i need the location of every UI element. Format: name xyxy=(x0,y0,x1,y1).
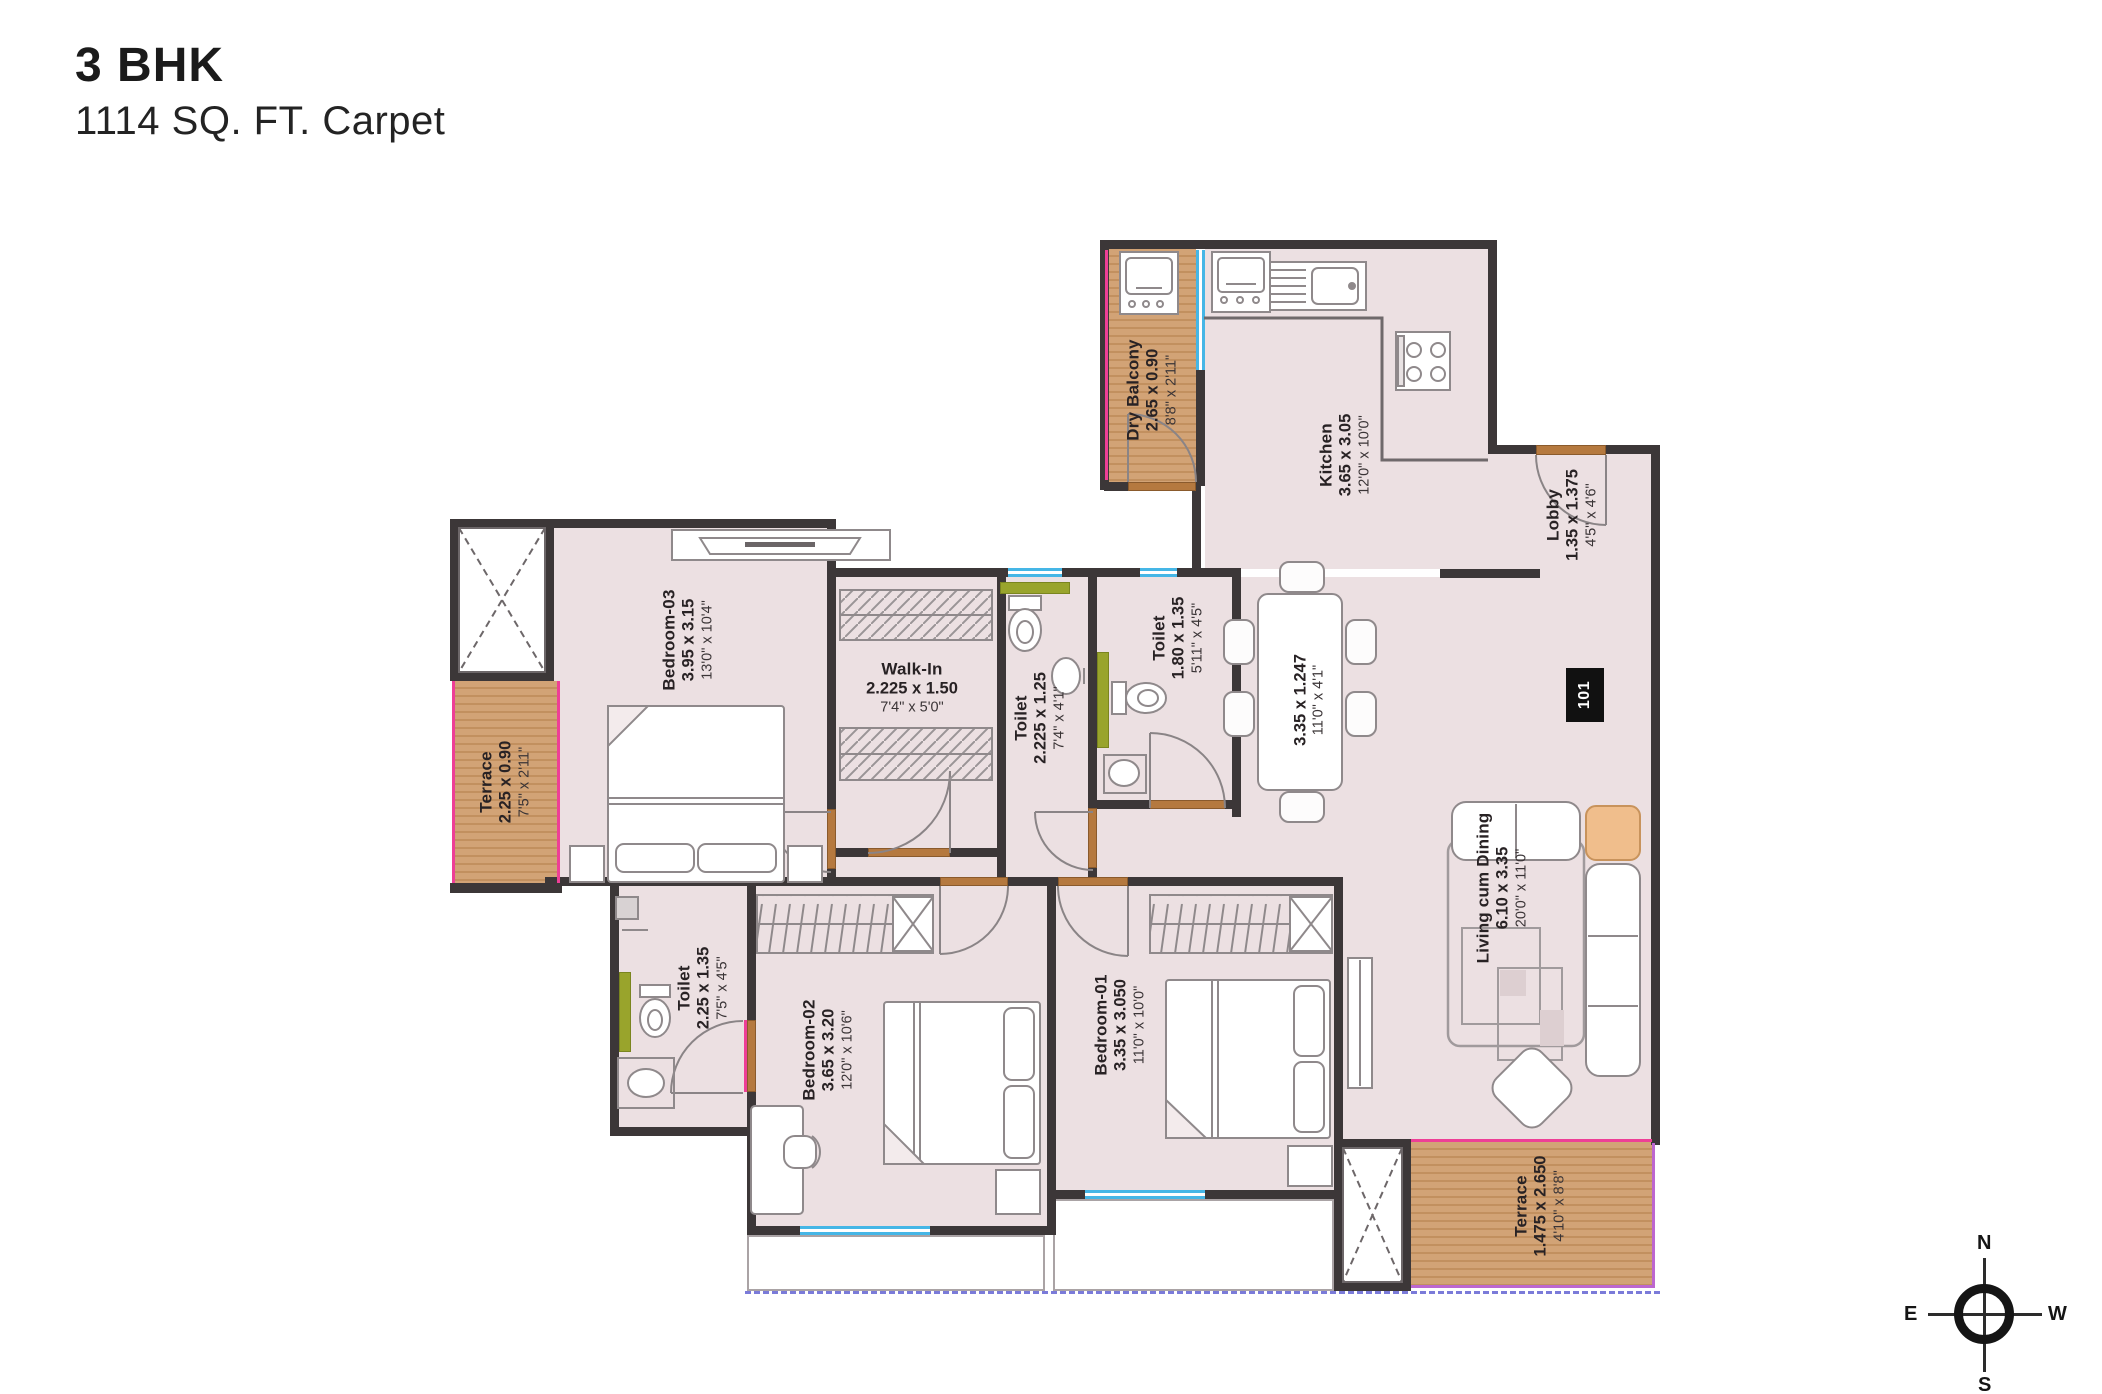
label-toilet-common: Toilet 1.80 x 1.35 5'11" x 4'5" xyxy=(1150,597,1207,680)
wall-segment xyxy=(747,877,756,1020)
door-sill-bedroom-02 xyxy=(940,877,1008,886)
wall-segment xyxy=(1488,445,1536,454)
page-title: 3 BHK 1114 SQ. FT. Carpet xyxy=(75,38,445,144)
window xyxy=(1140,568,1177,577)
parapet-line xyxy=(557,681,560,883)
door-sill-toilet-walkin xyxy=(1088,808,1097,868)
label-bedroom-01: Bedroom-01 3.35 x 3.050 11'0" x 10'0" xyxy=(1092,974,1149,1075)
wall-segment xyxy=(747,1092,756,1235)
compass-west-label: W xyxy=(2048,1303,2067,1326)
door-sill-dry-balcony xyxy=(1128,482,1196,491)
wall-segment xyxy=(1047,877,1056,1235)
label-bedroom-03: Bedroom-03 3.95 x 3.15 13'0" x 10'4" xyxy=(660,589,717,690)
door-sill-toilet-bed02 xyxy=(747,1020,756,1092)
compass-north-label: N xyxy=(1977,1232,1991,1255)
wall-segment xyxy=(545,519,554,681)
compass-south-label: S xyxy=(1978,1374,1991,1394)
wall-segment xyxy=(450,519,553,528)
wall-segment xyxy=(1128,877,1342,886)
carpet-area-subtitle: 1114 SQ. FT. Carpet xyxy=(75,99,445,144)
parapet-line xyxy=(1411,1139,1652,1142)
wall-segment xyxy=(1095,568,1140,577)
wall-segment xyxy=(450,672,553,681)
setback-area-bed01 xyxy=(1053,1199,1334,1291)
compass-icon xyxy=(1954,1284,2014,1344)
wall-segment xyxy=(450,519,459,681)
wall-segment xyxy=(1008,877,1047,886)
wall-segment xyxy=(545,519,836,528)
parapet-line xyxy=(1411,1285,1654,1288)
plan-type-title: 3 BHK xyxy=(75,38,445,93)
wall-segment xyxy=(950,848,997,857)
parapet-line xyxy=(1105,250,1108,480)
wall-segment xyxy=(827,568,1008,577)
floor-kitchen xyxy=(1205,249,1488,569)
window xyxy=(1085,1190,1205,1199)
wall-segment xyxy=(747,1226,800,1235)
wall-segment xyxy=(997,568,1006,886)
wall-segment xyxy=(610,877,619,1136)
door-sill-bedroom-03 xyxy=(827,809,836,869)
door-sill-main-entrance xyxy=(1536,445,1606,455)
wall-segment xyxy=(1192,482,1201,577)
wall-segment xyxy=(1088,568,1097,808)
wall-segment xyxy=(1100,240,1497,249)
wall-segment xyxy=(827,519,836,809)
wall-segment xyxy=(1334,1139,1411,1148)
setback-dashed-line xyxy=(745,1291,1660,1294)
wall-segment xyxy=(1402,1139,1411,1291)
setback-area-bed02 xyxy=(747,1235,1045,1291)
wall-segment xyxy=(1488,240,1497,454)
door-sill-bedroom-01 xyxy=(1058,877,1128,886)
label-terrace-left: Terrace 2.25 x 0.90 7'5" x 2'11" xyxy=(477,741,534,824)
wall-segment xyxy=(610,1127,756,1136)
wall-segment xyxy=(1225,800,1241,809)
label-terrace-bottom: Terrace 1.475 x 2.650 4'10" x 8'8" xyxy=(1512,1156,1569,1257)
label-walk-in: Walk-In 2.225 x 1.50 7'4" x 5'0" xyxy=(866,660,958,717)
wall-segment xyxy=(1334,1282,1411,1291)
door-sill-walk-in xyxy=(868,848,950,857)
shower-strip xyxy=(619,972,631,1052)
wall-segment xyxy=(1232,568,1241,817)
label-dining: 3.35 x 1.247 11'0" x 4'1" xyxy=(1292,654,1329,746)
wall-segment xyxy=(930,1226,1056,1235)
shower-strip xyxy=(1000,582,1070,594)
floor-hall-lower xyxy=(1343,877,1488,1139)
wall-segment xyxy=(747,877,940,886)
label-kitchen: Kitchen 3.65 x 3.05 12'0" x 10'0" xyxy=(1317,414,1374,497)
unit-number-badge: 101 xyxy=(1566,668,1604,722)
wall-segment xyxy=(1177,568,1240,577)
floor-bedroom-03 xyxy=(549,528,827,877)
wall-segment xyxy=(1440,569,1540,578)
floor-corridor xyxy=(836,808,1240,877)
wall-segment xyxy=(1047,1190,1085,1199)
compass-east-label: E xyxy=(1904,1303,1917,1326)
wall-segment xyxy=(1334,1139,1343,1291)
window xyxy=(1196,250,1205,370)
wall-segment xyxy=(1651,445,1660,1145)
parapet-line xyxy=(1652,1143,1655,1288)
shower-strip xyxy=(1097,652,1109,748)
label-toilet-bedroom-02: Toilet 2.25 x 1.35 7'5" x 4'5" xyxy=(675,947,732,1030)
door-sill-toilet-common xyxy=(1150,800,1225,809)
window xyxy=(1008,568,1062,577)
label-bedroom-02: Bedroom-02 3.65 x 3.20 12'0" x 10'6" xyxy=(800,999,857,1100)
wall-segment xyxy=(1205,1190,1343,1199)
wall-segment xyxy=(545,877,756,886)
wall-segment xyxy=(836,848,868,857)
parapet-line xyxy=(452,681,455,883)
wall-segment xyxy=(1196,370,1205,486)
label-toilet-walk-in: Toilet 2.225 x 1.25 7'4" x 4'1" xyxy=(1012,672,1069,764)
label-dry-balcony: Dry Balcony 2.65 x 0.90 8'8" x 2'11" xyxy=(1124,339,1181,440)
label-living-cum-dining: Living cum Dining 6.10 x 3.35 20'0" x 11… xyxy=(1474,813,1531,964)
label-lobby: Lobby 1.35 x 1.375 4'5" x 4'6" xyxy=(1544,469,1601,561)
window xyxy=(800,1226,930,1235)
floor-hall-upper xyxy=(1240,577,1488,877)
wall-segment xyxy=(1095,800,1150,809)
floor-plan-page: 3 BHK 1114 SQ. FT. Carpet xyxy=(0,0,2102,1394)
